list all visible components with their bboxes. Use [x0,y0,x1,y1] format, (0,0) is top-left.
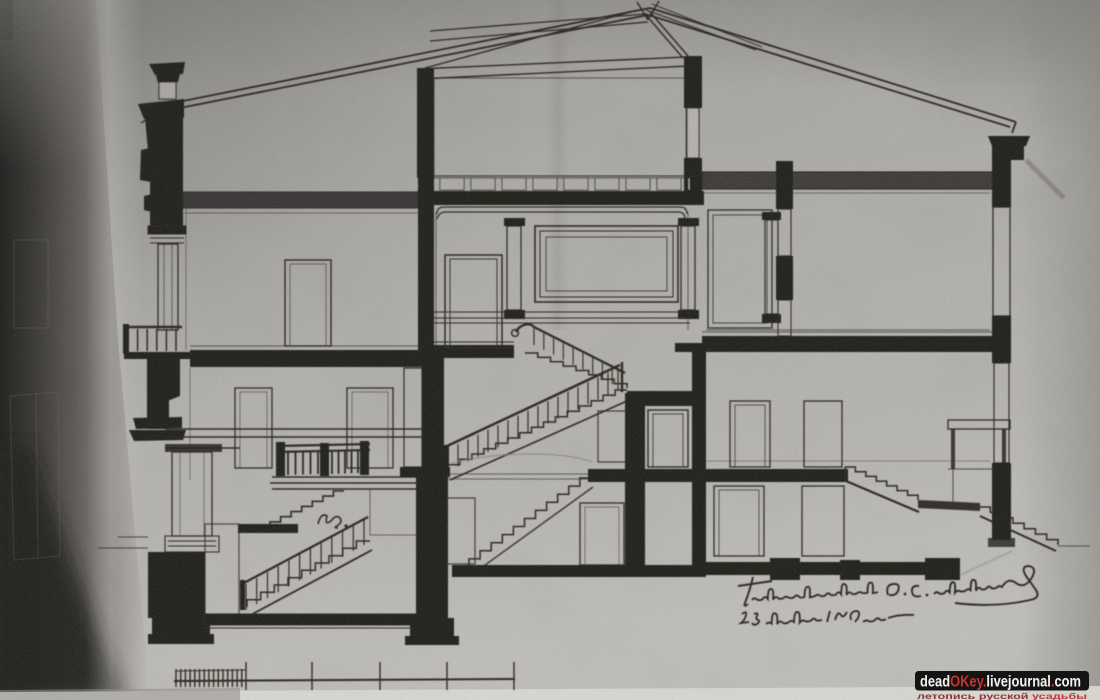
svg-text:deadOKey.livejournal.com: deadOKey.livejournal.com [920,674,1081,691]
svg-text:летопись русской усадьбы: летопись русской усадьбы [917,691,1087,700]
